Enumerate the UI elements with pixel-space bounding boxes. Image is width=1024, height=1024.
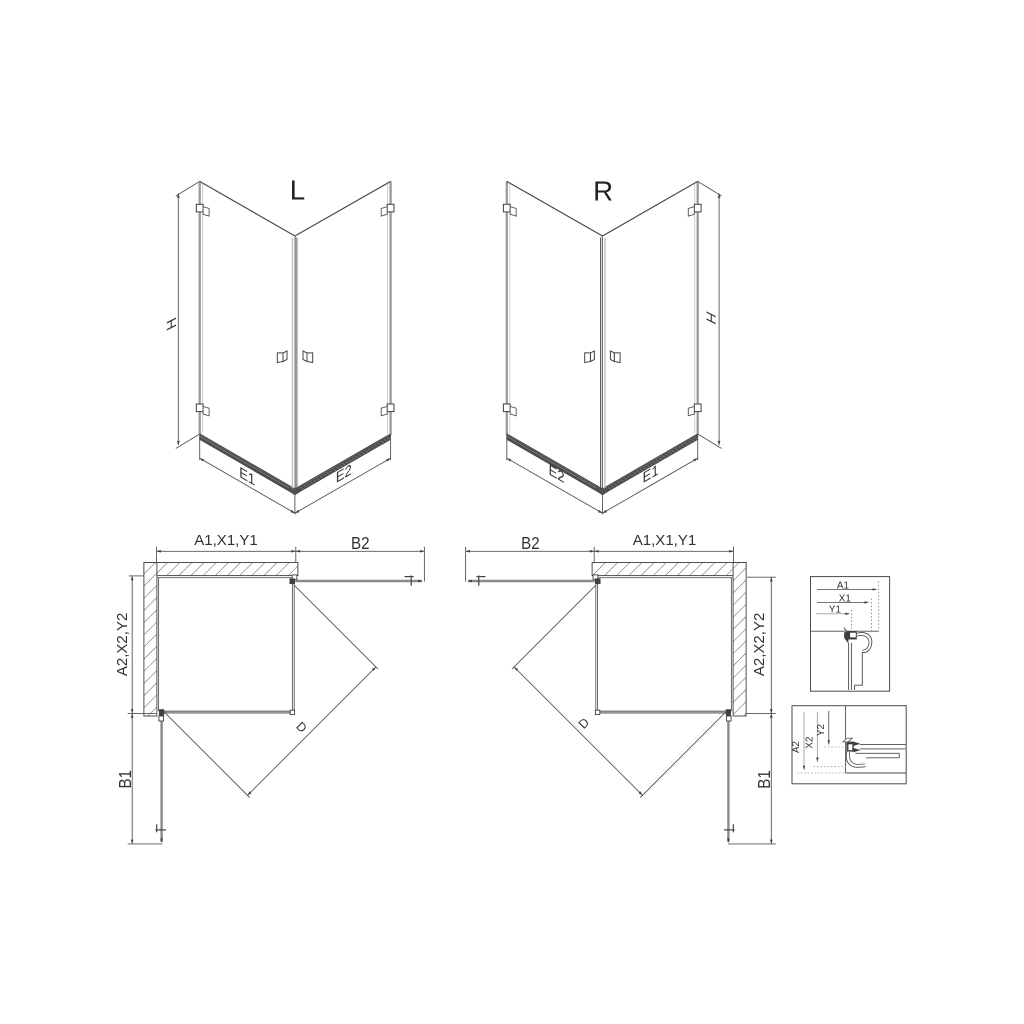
svg-text:A1: A1 bbox=[837, 581, 849, 592]
svg-text:X1: X1 bbox=[839, 594, 851, 605]
svg-text:A1,X1,Y1: A1,X1,Y1 bbox=[633, 532, 696, 549]
svg-text:A1,X1,Y1: A1,X1,Y1 bbox=[194, 532, 257, 549]
svg-text:B1: B1 bbox=[754, 770, 774, 789]
svg-text:L: L bbox=[290, 174, 305, 205]
svg-text:A2,X2,Y2: A2,X2,Y2 bbox=[751, 613, 768, 676]
svg-text:Y2: Y2 bbox=[816, 724, 827, 736]
svg-text:R: R bbox=[593, 176, 613, 207]
svg-text:A2,X2,Y2: A2,X2,Y2 bbox=[114, 613, 131, 676]
svg-text:X2: X2 bbox=[805, 737, 816, 749]
svg-text:B1: B1 bbox=[115, 770, 135, 789]
svg-text:B2: B2 bbox=[521, 533, 540, 553]
svg-text:A2: A2 bbox=[791, 741, 802, 753]
svg-text:B2: B2 bbox=[351, 533, 370, 553]
